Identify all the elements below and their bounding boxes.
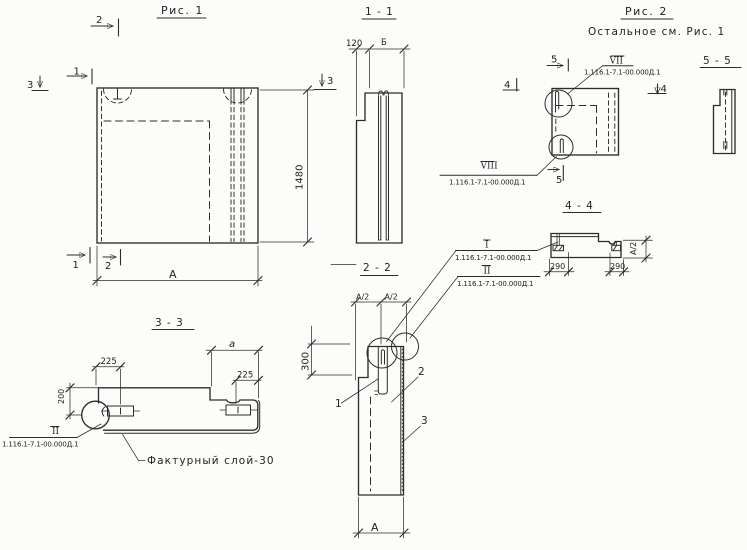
callout-i-doc: 1.116.1-7.1-00.000Д.1 — [455, 254, 531, 262]
fig1-dim-width: А — [93, 246, 262, 286]
sec22-dim-width: А — [353, 497, 410, 538]
sec22-title: 2 - 2 — [363, 262, 392, 274]
cut-marker-1-top: 1 — [74, 67, 80, 78]
sec11-title: 1 - 1 — [365, 6, 394, 18]
sec22-dim-300-label: 300 — [301, 352, 312, 371]
sec22-slot — [378, 347, 387, 395]
sec22-loop — [381, 350, 384, 364]
section-3-3: 3 - 3 225 200 — [2, 317, 275, 467]
callout-vii-doc: 1.116.1-7.1-00.000Д.1 — [584, 69, 660, 77]
sec22-callout-ii: II 1.116.1-7.1-00.000Д.1 — [457, 266, 540, 289]
cut-marker-4-right: 4 — [661, 84, 667, 95]
fig1-dim-height-label: 1480 — [295, 165, 306, 190]
sec33-anchor-left — [102, 406, 140, 416]
sec33-anchor-right — [220, 405, 257, 415]
drawing-svg: Рис. 1 1480 А 2 — [0, 0, 747, 550]
fig2-loop-bottom — [560, 139, 563, 153]
callout-viii-ref: VIII — [480, 162, 499, 172]
sec33-callout-ii: II 1.116.1-7.1-00.000Д.1 — [2, 424, 101, 449]
fig1-title: Рис. 1 — [161, 4, 204, 17]
part-label-3: 3 — [421, 415, 428, 427]
sec44-anchor-right — [612, 242, 621, 251]
fig2-subtitle: Остальное см. Рис. 1 — [588, 26, 725, 38]
cut-marker-1-bottom: 1 — [73, 260, 79, 271]
technical-drawing-sheet: Рис. 1 1480 А 2 — [0, 0, 747, 550]
sec33-title: 3 - 3 — [155, 317, 184, 329]
sec22-callout-i: I 1.116.1-7.1-00.000Д.1 — [455, 240, 558, 262]
cut-marker-2-top: 2 — [96, 15, 102, 26]
sec22-dim-300: 300 — [301, 326, 353, 379]
sec22-dim-half: А/2 А/2 — [351, 293, 411, 381]
part-label-2: 2 — [418, 366, 425, 378]
sec33-loop-circle — [82, 401, 110, 429]
sec33-dim-225-left: 225 — [92, 357, 125, 404]
sec33-dim-a-label: а — [229, 339, 235, 350]
sec44-dim-half: А/2 — [623, 236, 653, 262]
callout-ii-doc: 1.116.1-7.1-00.000Д.1 — [457, 280, 533, 288]
sec33-callout-ii-ref: II — [52, 427, 60, 437]
sec33-dim-225-left-label: 225 — [101, 357, 117, 367]
sec33-dim-a: а — [206, 339, 263, 398]
sec44-dim-290-right-label: 290 — [610, 262, 625, 271]
callout-vii-ref: VII — [609, 57, 624, 67]
callout-viii-doc: 1.116.1-7.1-00.000Д.1 — [449, 179, 525, 187]
fig2-title: Рис. 2 — [625, 5, 668, 18]
fig1-panel-elevation: Рис. 1 1480 А 2 — [27, 4, 336, 286]
part-label-1: 1 — [335, 398, 342, 410]
callout-i-ref: I — [485, 241, 489, 251]
sec11-dim-120: 120 — [346, 39, 362, 49]
section-2-2: 2 - 2 А/2 А/2 300 1 2 — [301, 240, 559, 538]
sec33-note: Фактурный слой-30 — [123, 435, 275, 468]
section-4-4: 4 - 4 290 290 — [544, 200, 653, 276]
cut-marker-3-left: 3 — [27, 80, 33, 91]
cut-marker-5-top: 5 — [551, 55, 557, 66]
fig2-callout-viii: VIII 1.116.1-7.1-00.000Д.1 — [440, 157, 557, 187]
callout-ii-ref: II — [484, 267, 492, 277]
section-1-1: 1 - 1 120 Б — [346, 6, 410, 243]
fig2-panel-elevation: Рис. 2 Остальное см. Рис. 1 VII 1.116.1-… — [440, 5, 725, 187]
fig1-dim-height: 1480 — [260, 86, 314, 246]
cut-marker-5-bottom: 5 — [556, 175, 562, 186]
sec11-dim-b: Б — [381, 38, 387, 48]
sec22-dim-half-left: А/2 — [356, 293, 369, 302]
sec33-dim-225-right: 225 — [232, 371, 263, 404]
fig2-loop-top — [556, 91, 559, 112]
sec44-dim-290-right: 290 — [605, 253, 629, 276]
sec22-part-labels: 1 2 3 — [335, 366, 428, 441]
cut-marker-4-left: 4 — [504, 80, 510, 91]
fig1-cut-markers: 2 1 3 3 1 2 — [27, 15, 336, 272]
section-5-5: 5 - 5 — [700, 55, 741, 154]
sec22-dim-half-right: А/2 — [385, 293, 398, 302]
sec33-callout-ii-doc: 1.116.1-7.1-00.000Д.1 — [2, 441, 78, 449]
sec55-title: 5 - 5 — [703, 55, 732, 67]
sec33-dim-200-label: 200 — [57, 389, 66, 404]
sec44-dim-290-left: 290 — [544, 253, 574, 276]
cut-marker-3-right: 3 — [327, 76, 333, 87]
sec44-title: 4 - 4 — [565, 200, 594, 212]
sec44-dim-half-label: А/2 — [629, 242, 638, 255]
sec33-dim-225-right-label: 225 — [237, 371, 253, 381]
sec44-dim-290-left-label: 290 — [550, 262, 565, 271]
cut-marker-2-bottom: 2 — [105, 261, 111, 272]
sec22-dim-width-label: А — [371, 521, 379, 534]
fig1-loop-mark — [114, 89, 122, 99]
sec33-note-label: Фактурный слой-30 — [147, 455, 275, 467]
fig1-dim-width-label: А — [169, 268, 177, 281]
